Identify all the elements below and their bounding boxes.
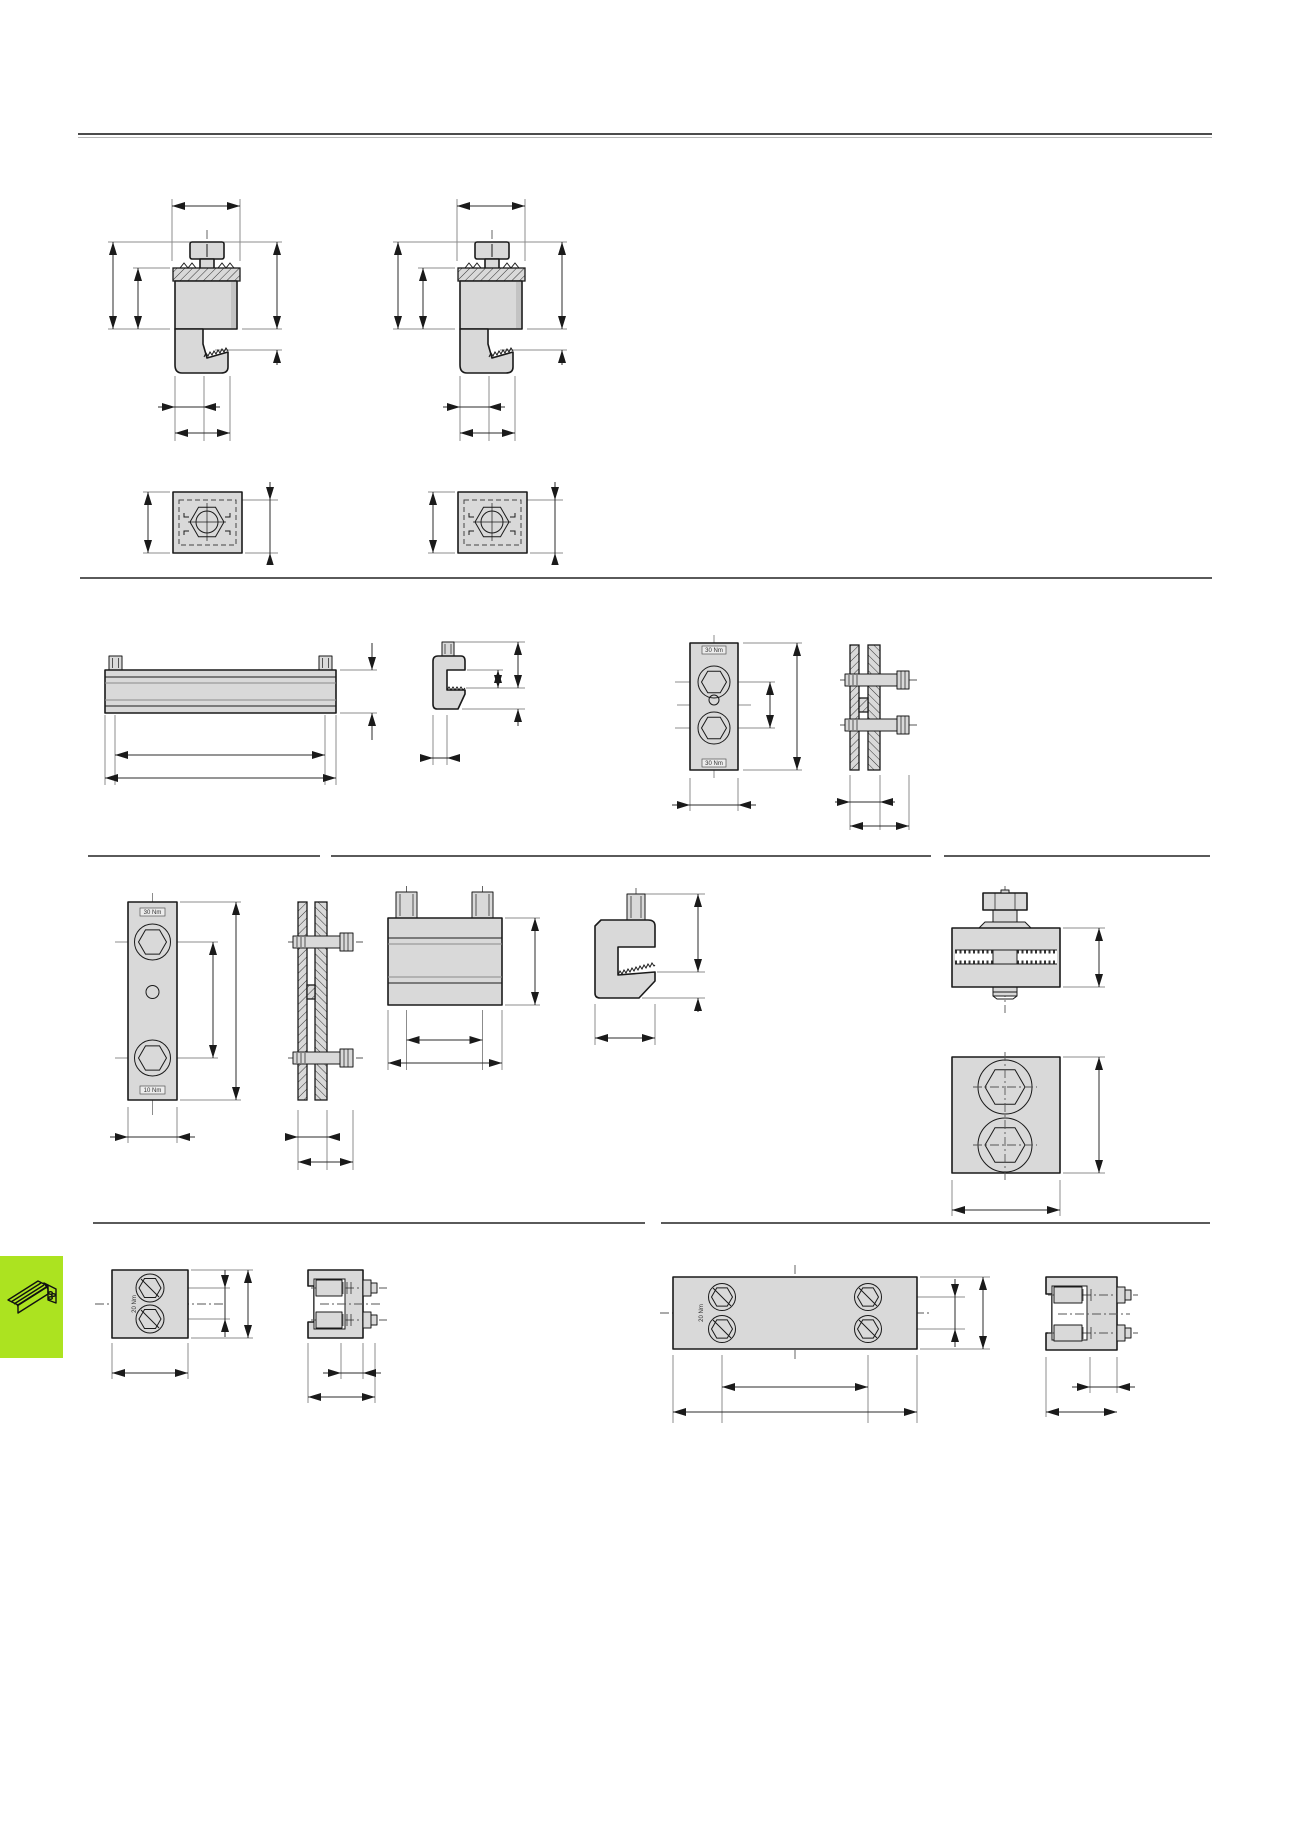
figure-screw-block-side (935, 878, 1110, 1018)
part-drawing (173, 492, 242, 553)
section-index-tab (0, 1256, 63, 1358)
top-rule-dark (78, 133, 1212, 135)
figure-wide-plate-top-row5: 20 Nm (660, 1245, 1005, 1430)
dimension-lines (285, 1110, 353, 1170)
torque-label: 30 Nm (705, 648, 723, 654)
part-drawing (308, 1270, 387, 1338)
part-drawing (952, 1052, 1060, 1180)
dimension-lines (105, 643, 377, 785)
figure-clamp-top-view-1 (118, 470, 288, 565)
part-drawing (458, 230, 525, 373)
torque-label: 10 Nm (144, 1088, 162, 1094)
part-drawing: 30 Nm 10 Nm (128, 902, 177, 1100)
torque-label: 20 Nm (132, 1295, 138, 1313)
part-drawing (1046, 1277, 1138, 1350)
figure-clamp-block-front (375, 880, 550, 1075)
divider-4b (661, 1222, 1210, 1224)
figure-clamping-bar-profile (420, 630, 535, 780)
figure-clamp-top-view-2 (403, 470, 573, 565)
clamp-profile-icon (0, 1256, 63, 1358)
figure-connector-section-row2 (835, 630, 945, 835)
part-drawing: 30 Nm 30 Nm (690, 643, 738, 770)
figure-clamp-side-view-1 (100, 166, 285, 456)
part-drawing (840, 645, 917, 770)
part-drawing (288, 902, 363, 1100)
figure-clamp-block-side (580, 880, 715, 1070)
top-rule-light (78, 137, 1212, 138)
part-drawing (173, 230, 240, 373)
figure-wide-plate-section-row5 (1030, 1245, 1145, 1425)
torque-label: 20 Nm (699, 1304, 705, 1322)
part-drawing (388, 886, 502, 1005)
part-drawing (458, 492, 527, 553)
dimension-lines (308, 1343, 381, 1403)
part-drawing: 20 Nm (112, 1270, 188, 1338)
divider-4a (93, 1222, 645, 1224)
dimension-lines (1046, 1357, 1135, 1417)
dimension-lines (835, 775, 909, 830)
divider-3a (88, 855, 320, 857)
divider-3b (331, 855, 931, 857)
torque-label: 30 Nm (144, 910, 162, 916)
figure-screw-block-top (935, 1040, 1110, 1220)
part-drawing (952, 886, 1060, 1013)
figure-small-block-top-row5: 20 Nm (75, 1243, 265, 1393)
divider-3c (944, 855, 1210, 857)
dimension-lines (1063, 928, 1105, 987)
figure-small-block-section-row5 (295, 1243, 405, 1418)
catalog-page: 30 Nm 30 Nm (0, 0, 1300, 1841)
part-drawing: 20 Nm (673, 1277, 917, 1349)
part-drawing (433, 642, 465, 709)
figure-clamping-bar-front (100, 635, 395, 790)
figure-connector-plate-row2: 30 Nm 30 Nm (665, 630, 810, 820)
figure-connector-plate-row4: 30 Nm 10 Nm (85, 885, 250, 1180)
divider-2 (80, 577, 1212, 579)
figure-clamp-side-view-2 (385, 166, 570, 456)
part-drawing (105, 656, 336, 713)
torque-label: 30 Nm (705, 761, 723, 767)
part-drawing (595, 888, 655, 998)
